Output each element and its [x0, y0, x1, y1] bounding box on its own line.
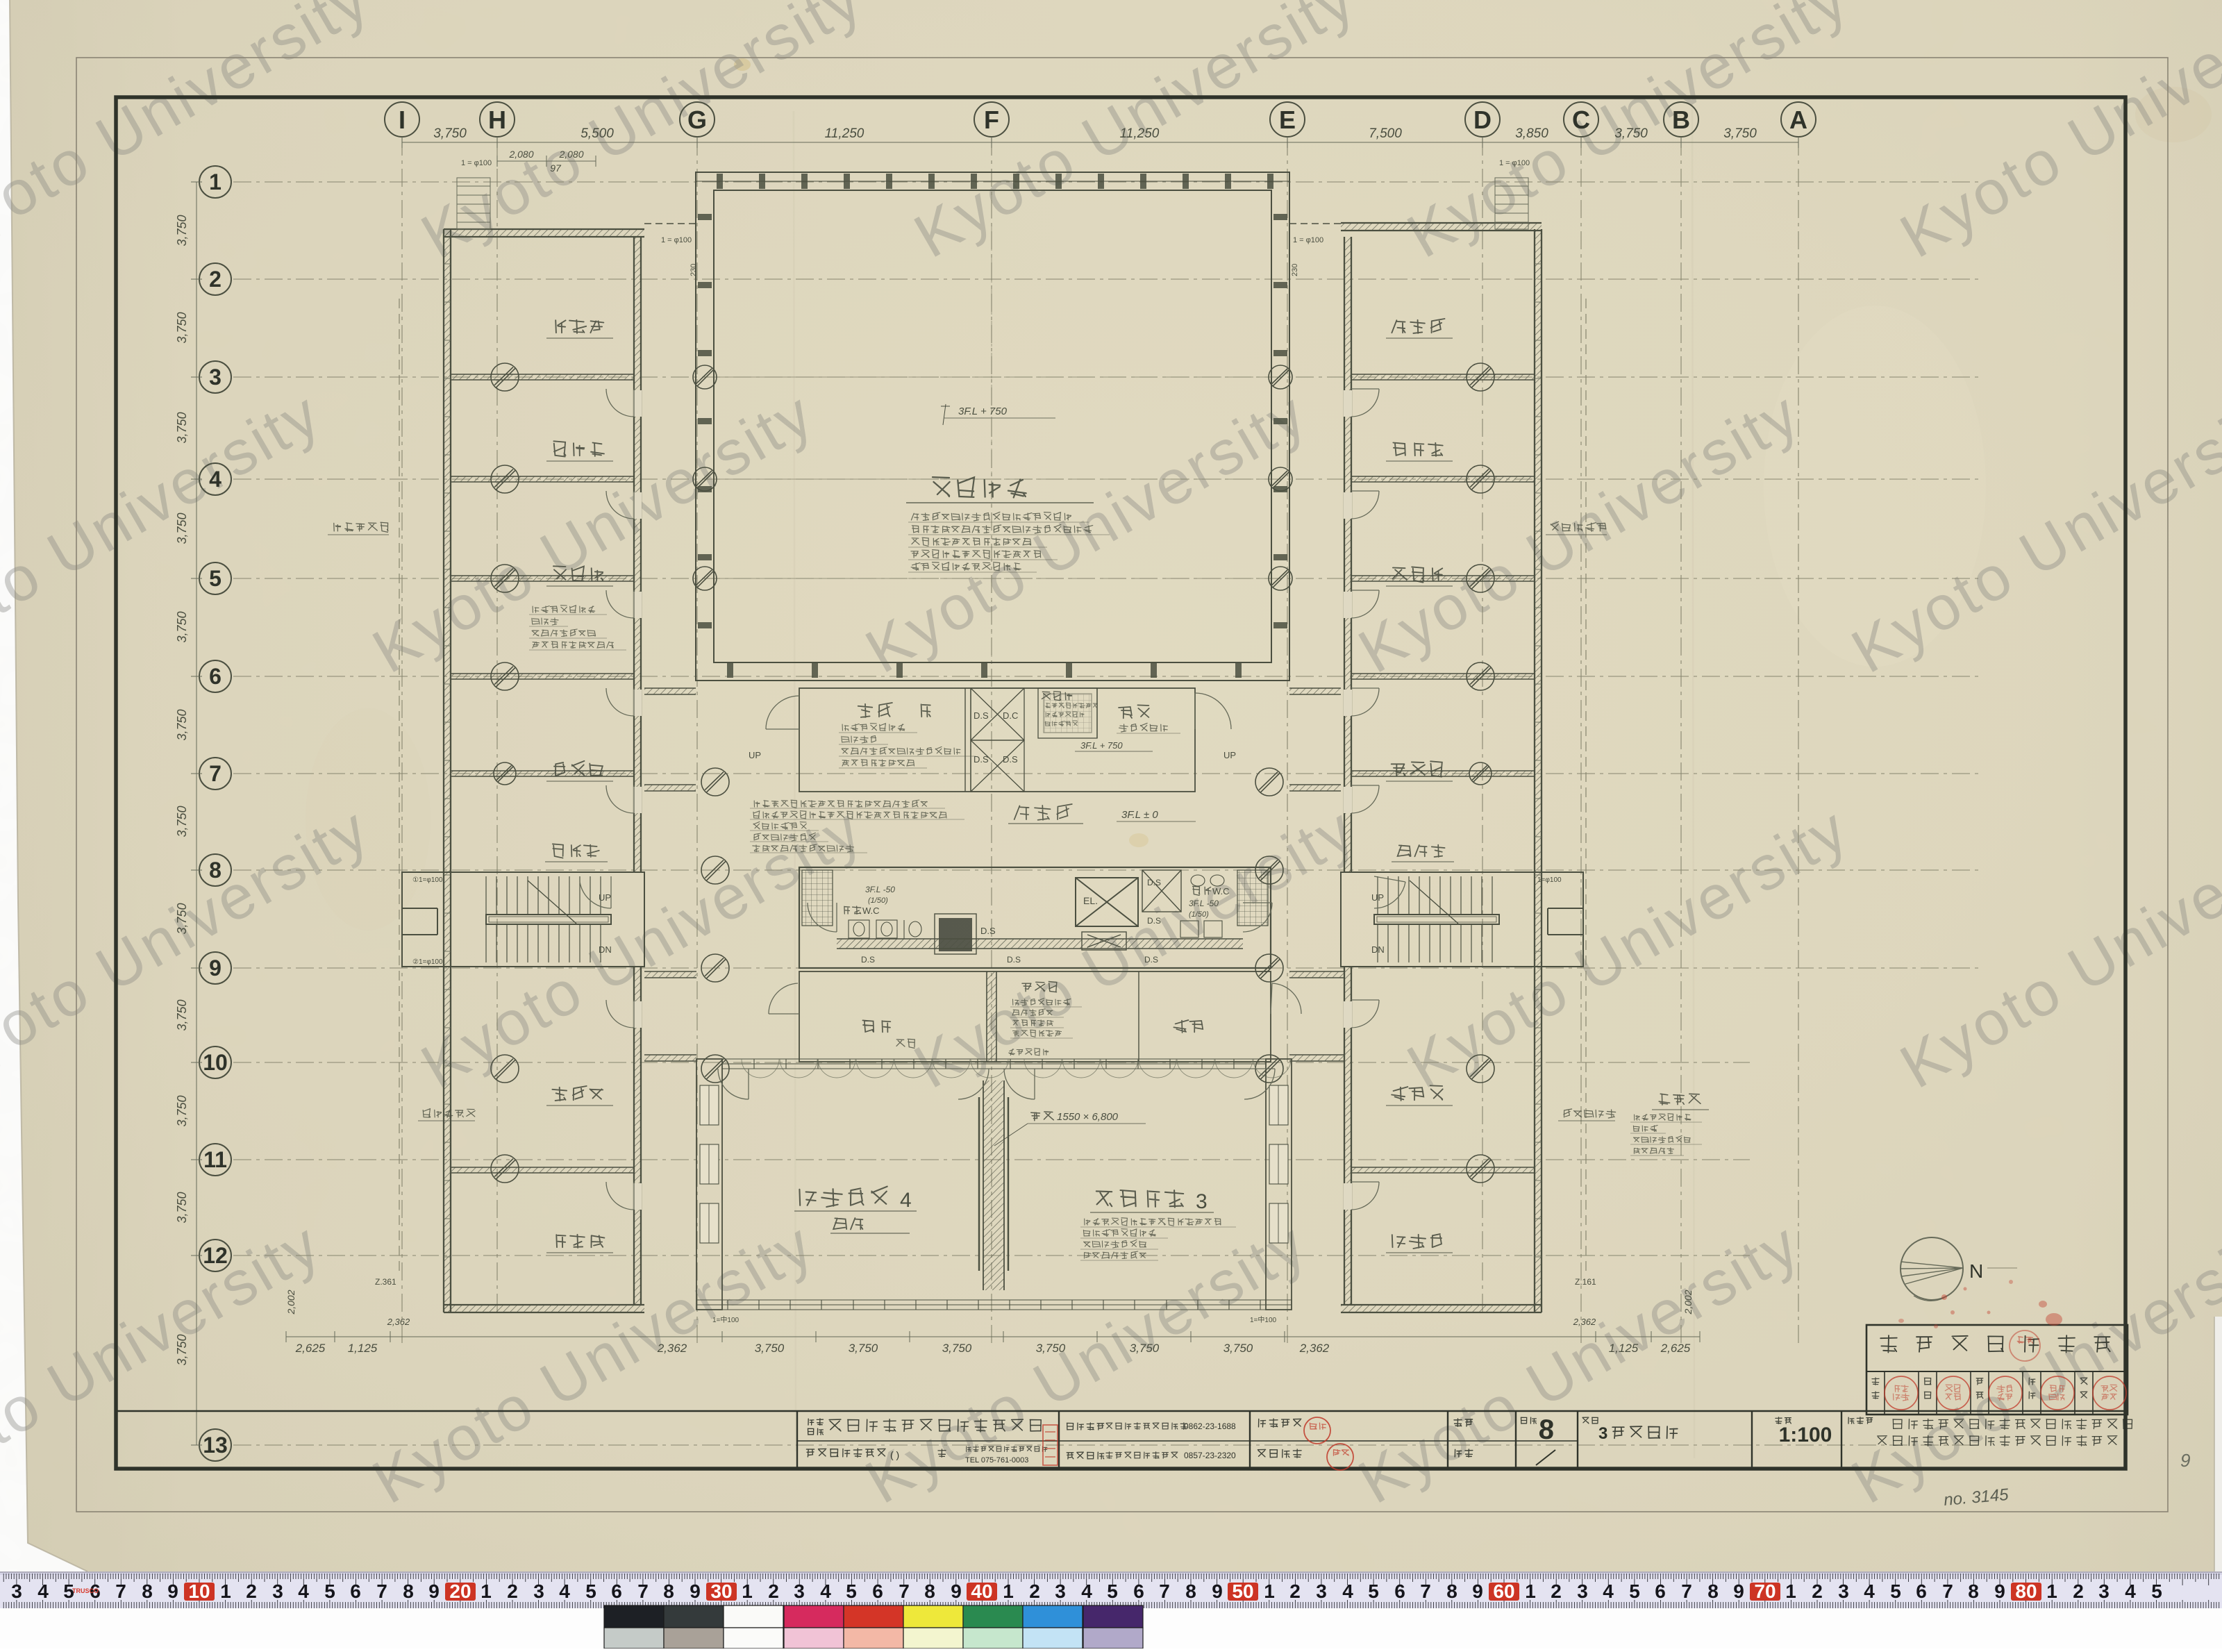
svg-text:97: 97	[550, 162, 562, 174]
svg-text:3,750: 3,750	[942, 1342, 972, 1355]
svg-text:(1/50): (1/50)	[1189, 910, 1209, 919]
svg-text:( ): ( )	[890, 1449, 899, 1460]
svg-text:1550 × 6,800: 1550 × 6,800	[1057, 1111, 1119, 1123]
svg-text:60: 60	[1493, 1580, 1514, 1602]
svg-text:9: 9	[209, 956, 222, 981]
svg-text:G: G	[687, 106, 707, 134]
svg-text:5: 5	[585, 1580, 596, 1602]
svg-text:6: 6	[872, 1580, 883, 1602]
svg-text:8: 8	[924, 1580, 935, 1602]
svg-text:D.S: D.S	[1147, 878, 1161, 887]
svg-text:3,750: 3,750	[433, 126, 467, 141]
svg-text:230: 230	[1291, 264, 1299, 276]
svg-text:3,750: 3,750	[175, 1095, 189, 1126]
svg-text:1: 1	[1264, 1580, 1275, 1602]
svg-text:8: 8	[1538, 1414, 1555, 1445]
svg-text:5: 5	[1368, 1580, 1379, 1602]
svg-text:1=中100: 1=中100	[1250, 1315, 1277, 1324]
svg-text:6: 6	[1916, 1580, 1927, 1602]
svg-text:3F.L + 750: 3F.L + 750	[958, 406, 1008, 417]
svg-text:3,750: 3,750	[175, 611, 189, 642]
svg-text:4: 4	[209, 467, 222, 492]
svg-text:13: 13	[203, 1433, 228, 1458]
svg-text:11: 11	[203, 1147, 227, 1172]
svg-text:3,750: 3,750	[175, 1192, 189, 1223]
svg-text:1 = φ100: 1 = φ100	[461, 159, 492, 167]
svg-text:4: 4	[1342, 1580, 1353, 1602]
svg-text:10: 10	[188, 1580, 210, 1602]
svg-text:1: 1	[742, 1580, 753, 1602]
svg-text:7: 7	[1681, 1580, 1692, 1602]
svg-text:3: 3	[1598, 1424, 1607, 1443]
svg-text:3,750: 3,750	[175, 806, 189, 837]
svg-text:3: 3	[1055, 1580, 1066, 1602]
svg-text:9: 9	[951, 1580, 962, 1602]
svg-text:3: 3	[1838, 1580, 1849, 1602]
svg-text:D.S: D.S	[1144, 955, 1158, 965]
svg-text:1,125: 1,125	[348, 1342, 378, 1355]
svg-text:3: 3	[209, 365, 222, 390]
svg-text:1=中100: 1=中100	[712, 1315, 740, 1324]
svg-text:30: 30	[710, 1580, 732, 1602]
svg-text:2: 2	[1812, 1580, 1823, 1602]
svg-text:UP: UP	[1371, 892, 1384, 903]
svg-text:7: 7	[1942, 1580, 1953, 1602]
svg-text:3,750: 3,750	[1130, 1342, 1160, 1355]
svg-text:0857-23-2320: 0857-23-2320	[1184, 1451, 1236, 1460]
svg-text:9: 9	[1212, 1580, 1223, 1602]
svg-text:2,362: 2,362	[387, 1317, 410, 1327]
svg-text:3: 3	[794, 1580, 805, 1602]
svg-text:5: 5	[1629, 1580, 1640, 1602]
svg-text:4: 4	[1081, 1580, 1092, 1602]
svg-text:EL.: EL.	[1083, 895, 1098, 906]
svg-text:1: 1	[481, 1580, 492, 1602]
svg-text:UP: UP	[1223, 750, 1236, 760]
svg-text:TEL 075-761-0003: TEL 075-761-0003	[965, 1456, 1028, 1465]
svg-text:D.S: D.S	[980, 926, 996, 936]
svg-text:D.S: D.S	[974, 710, 989, 721]
svg-text:N: N	[1969, 1260, 1983, 1282]
svg-text:9: 9	[1733, 1580, 1744, 1602]
svg-text:40: 40	[971, 1580, 992, 1602]
svg-text:2: 2	[2073, 1580, 2084, 1602]
svg-text:Z.361: Z.361	[375, 1277, 396, 1287]
svg-text:8: 8	[663, 1580, 674, 1602]
svg-text:B: B	[1672, 106, 1690, 134]
svg-text:2,625: 2,625	[295, 1342, 326, 1355]
svg-text:4: 4	[559, 1580, 570, 1602]
svg-text:4: 4	[820, 1580, 831, 1602]
svg-text:9: 9	[1994, 1580, 2005, 1602]
svg-text:②1=φ100: ②1=φ100	[412, 958, 443, 966]
svg-text:3,750: 3,750	[849, 1342, 878, 1355]
svg-text:5: 5	[2151, 1580, 2162, 1602]
svg-text:3: 3	[1577, 1580, 1588, 1602]
svg-text:4: 4	[1864, 1580, 1875, 1602]
svg-text:2: 2	[507, 1580, 518, 1602]
svg-text:8: 8	[142, 1580, 153, 1602]
svg-text:20: 20	[449, 1580, 471, 1602]
svg-text:H: H	[488, 106, 506, 134]
svg-text:D: D	[1473, 106, 1492, 134]
svg-text:3F.L + 750: 3F.L + 750	[1080, 740, 1123, 751]
svg-text:D.S: D.S	[1007, 955, 1021, 965]
svg-text:6: 6	[1394, 1580, 1405, 1602]
svg-text:3,750: 3,750	[175, 999, 189, 1031]
svg-text:6: 6	[1655, 1580, 1666, 1602]
svg-text:2,625: 2,625	[1660, 1342, 1691, 1355]
svg-text:4: 4	[298, 1580, 309, 1602]
svg-text:2,362: 2,362	[657, 1342, 687, 1355]
svg-text:11,250: 11,250	[825, 126, 864, 141]
svg-text:D.C: D.C	[1003, 710, 1018, 721]
svg-text:9: 9	[690, 1580, 701, 1602]
svg-text:UP: UP	[599, 892, 611, 903]
svg-text:4: 4	[900, 1189, 912, 1212]
svg-text:1: 1	[209, 169, 222, 194]
svg-text:2,362: 2,362	[1573, 1317, 1596, 1327]
svg-text:8: 8	[1968, 1580, 1979, 1602]
svg-text:W.C: W.C	[862, 906, 880, 916]
svg-text:3: 3	[272, 1580, 283, 1602]
svg-text:1 = φ100: 1 = φ100	[661, 236, 692, 244]
svg-text:6: 6	[350, 1580, 361, 1602]
svg-text:3: 3	[1196, 1190, 1208, 1213]
svg-text:3,750: 3,750	[175, 215, 189, 246]
svg-text:I: I	[399, 106, 406, 134]
svg-text:11,250: 11,250	[1120, 126, 1160, 141]
svg-text:A: A	[1789, 106, 1807, 134]
svg-text:UP: UP	[749, 750, 761, 760]
svg-text:E: E	[1279, 106, 1296, 134]
svg-text:6: 6	[209, 664, 222, 689]
svg-text:4: 4	[1603, 1580, 1614, 1602]
svg-text:3: 3	[2098, 1580, 2110, 1602]
svg-text:D.S: D.S	[1003, 754, 1018, 765]
svg-text:3F.L -50: 3F.L -50	[1189, 899, 1219, 908]
svg-text:2: 2	[1029, 1580, 1040, 1602]
svg-text:2,080: 2,080	[558, 149, 583, 160]
svg-text:8: 8	[1707, 1580, 1719, 1602]
svg-text:9: 9	[1472, 1580, 1483, 1602]
svg-text:2: 2	[1551, 1580, 1562, 1602]
svg-text:(1/50): (1/50)	[868, 896, 888, 905]
svg-text:8: 8	[1446, 1580, 1457, 1602]
svg-text:1 = φ100: 1 = φ100	[1293, 236, 1323, 244]
svg-text:0862-23-1688: 0862-23-1688	[1184, 1421, 1236, 1431]
svg-text:7: 7	[1159, 1580, 1170, 1602]
svg-text:3: 3	[533, 1580, 544, 1602]
svg-text:3,750: 3,750	[175, 412, 189, 443]
svg-text:3,750: 3,750	[1614, 126, 1648, 141]
svg-text:3,750: 3,750	[175, 1334, 189, 1365]
svg-text:7,500: 7,500	[1369, 126, 1402, 141]
svg-text:7: 7	[376, 1580, 387, 1602]
svg-text:7: 7	[637, 1580, 649, 1602]
svg-text:3F.L ± 0: 3F.L ± 0	[1121, 809, 1158, 821]
svg-text:50: 50	[1232, 1580, 1253, 1602]
svg-text:2,362: 2,362	[1299, 1342, 1330, 1355]
svg-text:1: 1	[2046, 1580, 2057, 1602]
svg-text:70: 70	[1754, 1580, 1776, 1602]
svg-text:9: 9	[167, 1580, 178, 1602]
svg-text:1=φ100: 1=φ100	[1537, 876, 1562, 884]
svg-text:①1=φ100: ①1=φ100	[412, 876, 443, 884]
svg-text:D.S: D.S	[974, 754, 989, 765]
svg-text:W.C: W.C	[1212, 886, 1230, 896]
svg-text:3F.L -50: 3F.L -50	[865, 885, 895, 894]
svg-text:7: 7	[209, 761, 222, 786]
svg-text:D.S: D.S	[861, 955, 875, 965]
svg-text:4: 4	[2125, 1580, 2136, 1602]
svg-text:3,750: 3,750	[175, 903, 189, 934]
svg-text:6: 6	[611, 1580, 622, 1602]
svg-text:80: 80	[2015, 1580, 2037, 1602]
svg-text:DN: DN	[1371, 944, 1385, 955]
svg-text:7: 7	[1420, 1580, 1431, 1602]
svg-text:3,850: 3,850	[1515, 126, 1548, 141]
svg-text:4: 4	[37, 1580, 49, 1602]
svg-text:3,750: 3,750	[1723, 126, 1757, 141]
svg-text:1: 1	[1525, 1580, 1536, 1602]
svg-text:5: 5	[209, 566, 222, 591]
svg-text:230: 230	[690, 264, 698, 276]
svg-text:2: 2	[768, 1580, 779, 1602]
svg-text:1: 1	[1003, 1580, 1014, 1602]
svg-text:5: 5	[1890, 1580, 1901, 1602]
svg-text:2: 2	[209, 267, 222, 292]
svg-text:1: 1	[1785, 1580, 1796, 1602]
svg-text:3,750: 3,750	[175, 512, 189, 544]
svg-text:10: 10	[203, 1050, 228, 1075]
svg-text:5: 5	[324, 1580, 335, 1602]
svg-text:6: 6	[1133, 1580, 1144, 1602]
svg-text:5: 5	[846, 1580, 857, 1602]
svg-text:7: 7	[115, 1580, 126, 1602]
svg-text:1:100: 1:100	[1779, 1424, 1832, 1446]
svg-text:3: 3	[1316, 1580, 1327, 1602]
svg-text:3,750: 3,750	[1036, 1342, 1066, 1355]
svg-text:2: 2	[1289, 1580, 1301, 1602]
svg-text:1 = φ100: 1 = φ100	[1499, 159, 1530, 167]
svg-text:DN: DN	[599, 944, 612, 955]
svg-text:3,750: 3,750	[755, 1342, 785, 1355]
svg-text:2,080: 2,080	[508, 149, 533, 160]
svg-text:3,750: 3,750	[175, 312, 189, 343]
svg-text:5,500: 5,500	[580, 126, 614, 141]
svg-text:Z.161: Z.161	[1575, 1277, 1596, 1287]
svg-text:1,125: 1,125	[1609, 1342, 1639, 1355]
svg-text:D.S: D.S	[1147, 916, 1161, 926]
svg-text:8: 8	[403, 1580, 414, 1602]
svg-text:8: 8	[1185, 1580, 1196, 1602]
svg-text:12: 12	[203, 1243, 228, 1268]
svg-text:2,002: 2,002	[1682, 1290, 1694, 1315]
svg-text:7: 7	[899, 1580, 910, 1602]
svg-text:5: 5	[1107, 1580, 1118, 1602]
svg-text:1: 1	[220, 1580, 231, 1602]
svg-text:C: C	[1572, 106, 1590, 134]
svg-text:9: 9	[428, 1580, 440, 1602]
svg-text:F: F	[984, 106, 999, 134]
svg-text:9: 9	[2180, 1450, 2190, 1471]
svg-text:3,750: 3,750	[175, 709, 189, 740]
svg-text:3,750: 3,750	[1223, 1342, 1253, 1355]
svg-text:8: 8	[209, 858, 222, 883]
svg-text:TRUSCO: TRUSCO	[72, 1587, 99, 1594]
svg-text:3: 3	[11, 1580, 22, 1602]
svg-text:2,002: 2,002	[285, 1290, 296, 1315]
svg-text:2: 2	[246, 1580, 257, 1602]
